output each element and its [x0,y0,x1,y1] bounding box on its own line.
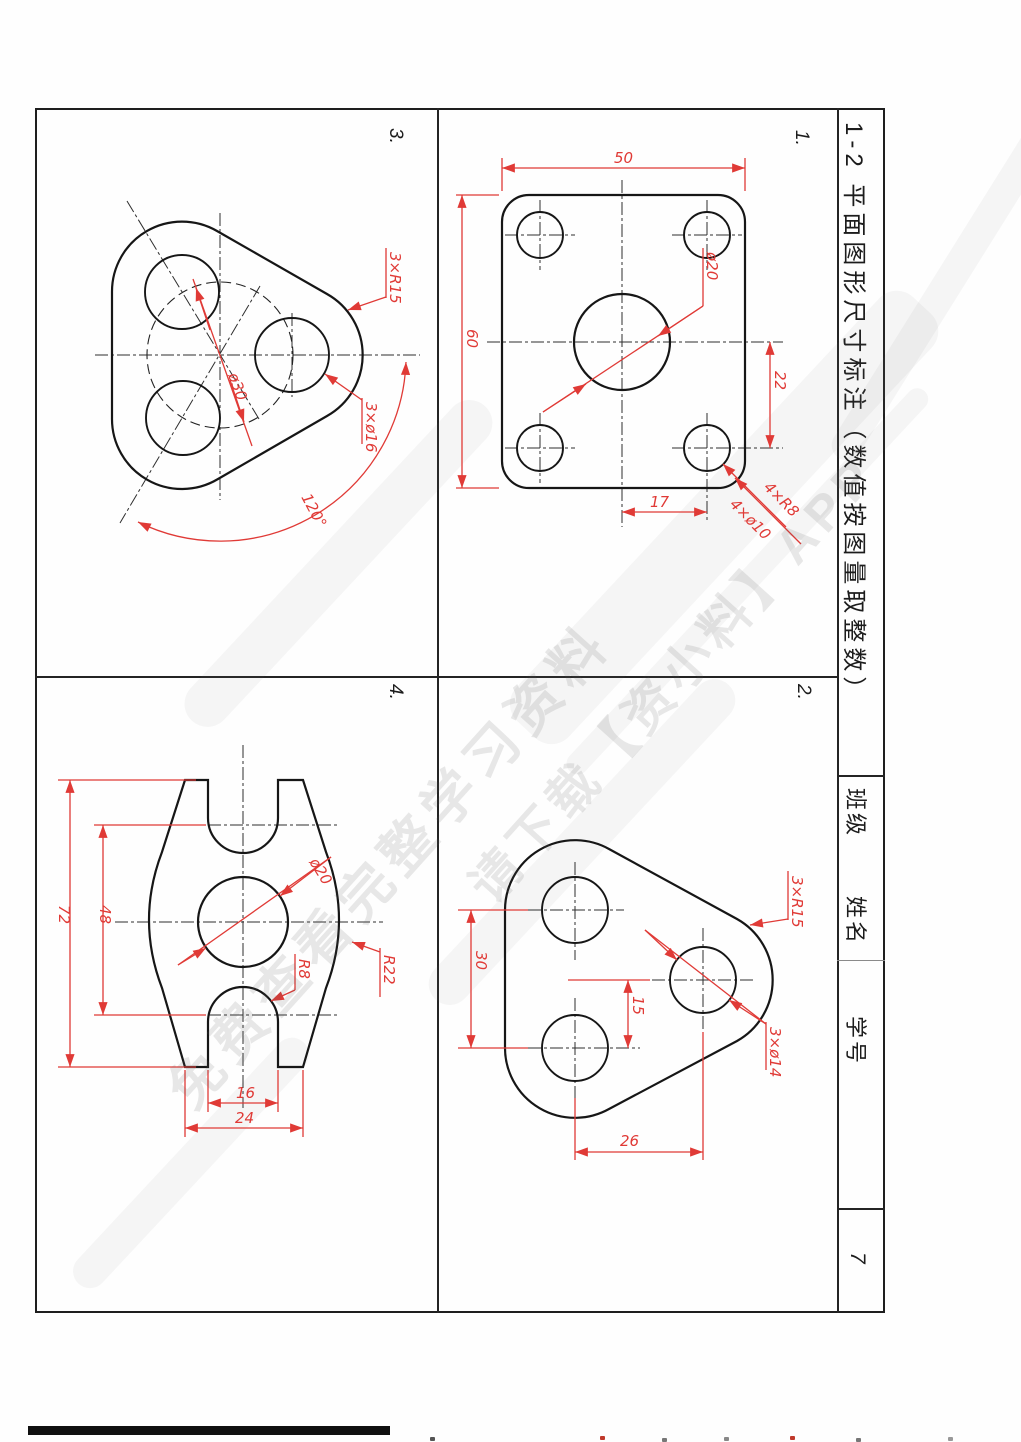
workbook-page: 免费查看完整学习资料 请下载【资小料】APP 1-2 平面图形尺寸标注（数值按图… [0,0,1021,1442]
page-edge-speck [724,1437,729,1441]
dim-offset-v: 22 [771,371,789,390]
dim-corner-radius: 4×R8 [760,478,802,520]
dim-center-hole: ø20 [703,251,721,280]
dim-bolt-circle: ø30 [224,369,251,403]
drawing-1-centerlines [487,180,783,527]
dim-holes: 3×ø16 [362,402,380,452]
drawing-2-outline [505,840,773,1118]
page-edge-speck [948,1437,953,1441]
drawing-3-centerlines [95,201,420,523]
name-field-label: 姓名 [841,896,873,946]
drawing-2-dimensions [458,871,788,1160]
dim-vertex-radius: 3×R15 [386,252,404,304]
dim-offset-h: 17 [650,493,670,511]
dim-slot-radius: R8 [295,959,313,979]
drawing-2-dimension-texts: 30 15 26 3×R15 3×ø14 [472,876,806,1150]
drawing-1-dimensions [456,158,801,544]
page-number: 7 [845,1252,869,1264]
student-id-field-label: 学号 [841,1016,873,1066]
dim-side-radius: R22 [380,955,398,985]
dim-angle: 120° [297,490,330,530]
dim-base: 26 [620,1132,639,1150]
dim-width: 50 [614,149,633,167]
dim-base-width: 24 [235,1109,254,1127]
class-field-label: 班级 [841,788,873,838]
drawing-4-centerlines [115,745,383,1108]
strip-cell-line [837,1208,885,1210]
dim-corner-holes: 4×ø10 [726,495,774,543]
page-edge-speck [600,1436,605,1440]
drawing-3-dimensions [138,248,406,541]
dim-span: 30 [472,951,490,970]
dim-height: 60 [463,329,481,348]
page-edge-speck [430,1437,435,1441]
next-page-edge [28,1426,390,1435]
drawing-2-triangular-plate: 30 15 26 3×R15 3×ø14 [437,676,837,1313]
drawing-3-triangular-plate: 3×R15 3×ø16 ø30 120° [35,108,437,676]
dim-vertex-radius: 3×R15 [788,876,806,928]
drawing-4-slotted-link: 72 48 ø20 R22 R8 16 24 [35,676,437,1313]
sheet-title: 1-2 平面图形尺寸标注（数值按图量取整数） [839,122,874,705]
dim-slot-width: 16 [236,1084,255,1102]
dim-centers: 48 [96,905,114,924]
drawing-3-dimension-texts: 3×R15 3×ø16 ø30 120° [224,252,404,531]
drawing-4-outline [149,780,339,1067]
drawing-4-dimensions [58,780,380,1137]
dim-center-hole: ø20 [305,854,336,888]
dim-offset: 15 [629,996,647,1015]
page-edge-speck [662,1438,667,1442]
page-edge-speck [790,1436,795,1440]
dim-overall: 72 [55,905,73,924]
drawing-1-plate-with-corner-holes: 50 60 22 17 ø20 4×R8 4×ø10 [437,108,837,676]
strip-cell-line-light [837,960,885,961]
strip-cell-line [837,775,885,777]
dim-holes: 3×ø14 [766,1027,784,1077]
page-edge-speck [856,1438,861,1442]
